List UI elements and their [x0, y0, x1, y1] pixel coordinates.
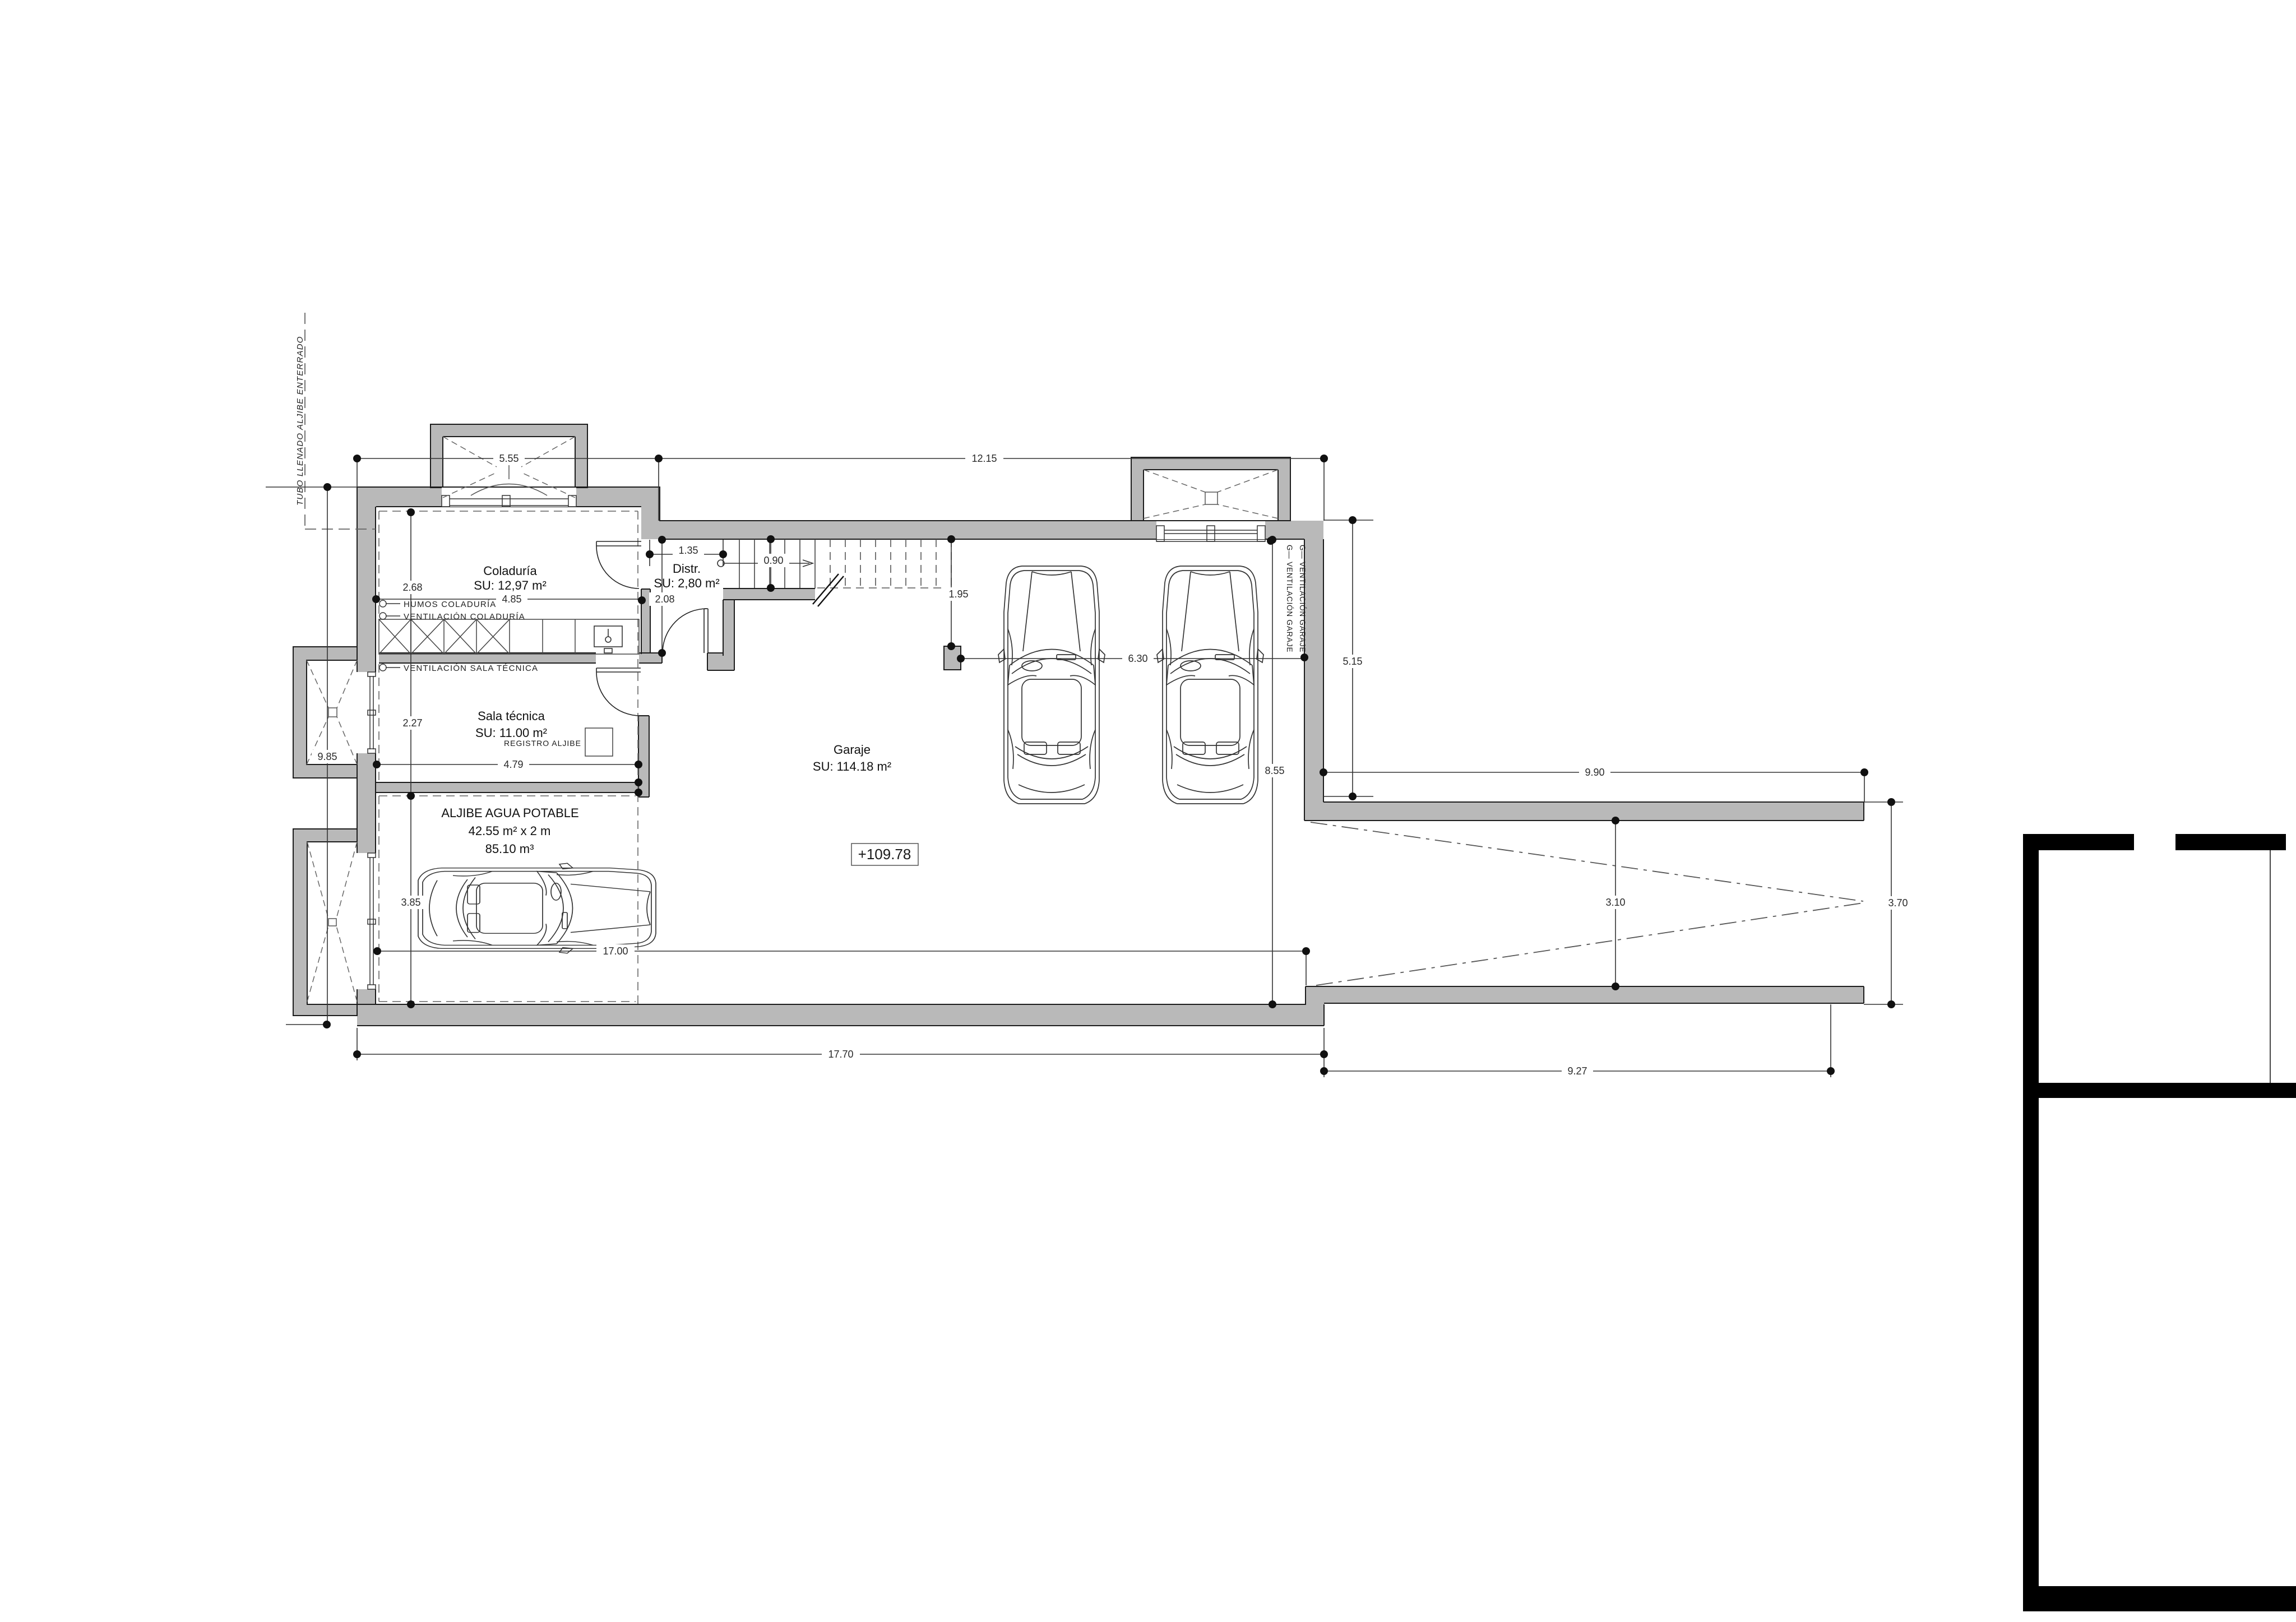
svg-text:85.10 m³: 85.10 m³ [485, 842, 534, 856]
svg-text:12.15: 12.15 [971, 453, 997, 464]
svg-text:42.55 m² x 2 m: 42.55 m² x 2 m [469, 824, 551, 838]
svg-text:9.27: 9.27 [1567, 1065, 1587, 1077]
svg-text:VENTILACIÓN COLADURÍA: VENTILACIÓN COLADURÍA [404, 612, 525, 622]
svg-text:HUMOS COLADURÍA: HUMOS COLADURÍA [404, 600, 497, 609]
svg-text:4.85: 4.85 [502, 594, 521, 605]
svg-text:3.85: 3.85 [401, 897, 420, 908]
svg-text:2.08: 2.08 [655, 594, 674, 605]
svg-text:4.79: 4.79 [503, 759, 523, 770]
svg-text:6.30: 6.30 [1128, 653, 1147, 664]
svg-text:3.70: 3.70 [1888, 897, 1908, 909]
svg-text:17.70: 17.70 [828, 1049, 853, 1060]
svg-text:0.90: 0.90 [763, 555, 783, 566]
svg-text:G— VENTILACIÓN GARAJE: G— VENTILACIÓN GARAJE [1298, 545, 1307, 652]
svg-text:SU: 11.00 m²: SU: 11.00 m² [475, 726, 547, 740]
svg-text:Garaje: Garaje [834, 743, 871, 757]
svg-text:SU: 114.18 m²: SU: 114.18 m² [813, 759, 891, 773]
svg-text:17.00: 17.00 [603, 946, 628, 957]
svg-text:1.35: 1.35 [678, 545, 698, 556]
svg-text:5.55: 5.55 [499, 453, 519, 464]
svg-text:TUBO LLENADO ALJIBE ENTERRA: TUBO LLENADO ALJIBE ENTERRADO [295, 336, 305, 506]
svg-text:+109.78: +109.78 [858, 846, 911, 863]
svg-text:2.27: 2.27 [402, 717, 422, 729]
svg-text:REGISTRO ALJIBE: REGISTRO ALJIBE [504, 739, 581, 748]
svg-text:2.68: 2.68 [402, 582, 422, 593]
svg-text:VENTILACIÓN SALA TÉCNICA: VENTILACIÓN SALA TÉCNICA [404, 664, 538, 673]
svg-text:SU: 12,97 m²: SU: 12,97 m² [474, 578, 547, 592]
svg-text:5.15: 5.15 [1343, 656, 1362, 667]
svg-text:Sala técnica: Sala técnica [478, 709, 545, 723]
svg-text:G— VENTILACIÓN GARAJE: G— VENTILACIÓN GARAJE [1285, 545, 1294, 652]
svg-text:ALJIBE AGUA POTABLE: ALJIBE AGUA POTABLE [441, 806, 578, 820]
svg-text:3.10: 3.10 [1605, 897, 1625, 908]
svg-text:9.90: 9.90 [1585, 767, 1604, 778]
svg-text:9.85: 9.85 [317, 751, 337, 762]
svg-text:8.55: 8.55 [1265, 765, 1284, 776]
svg-text:Coladuría: Coladuría [483, 564, 537, 578]
svg-text:1.95: 1.95 [948, 588, 968, 600]
svg-text:SU: 2,80 m²: SU: 2,80 m² [654, 576, 719, 590]
svg-text:Distr.: Distr. [673, 562, 701, 576]
